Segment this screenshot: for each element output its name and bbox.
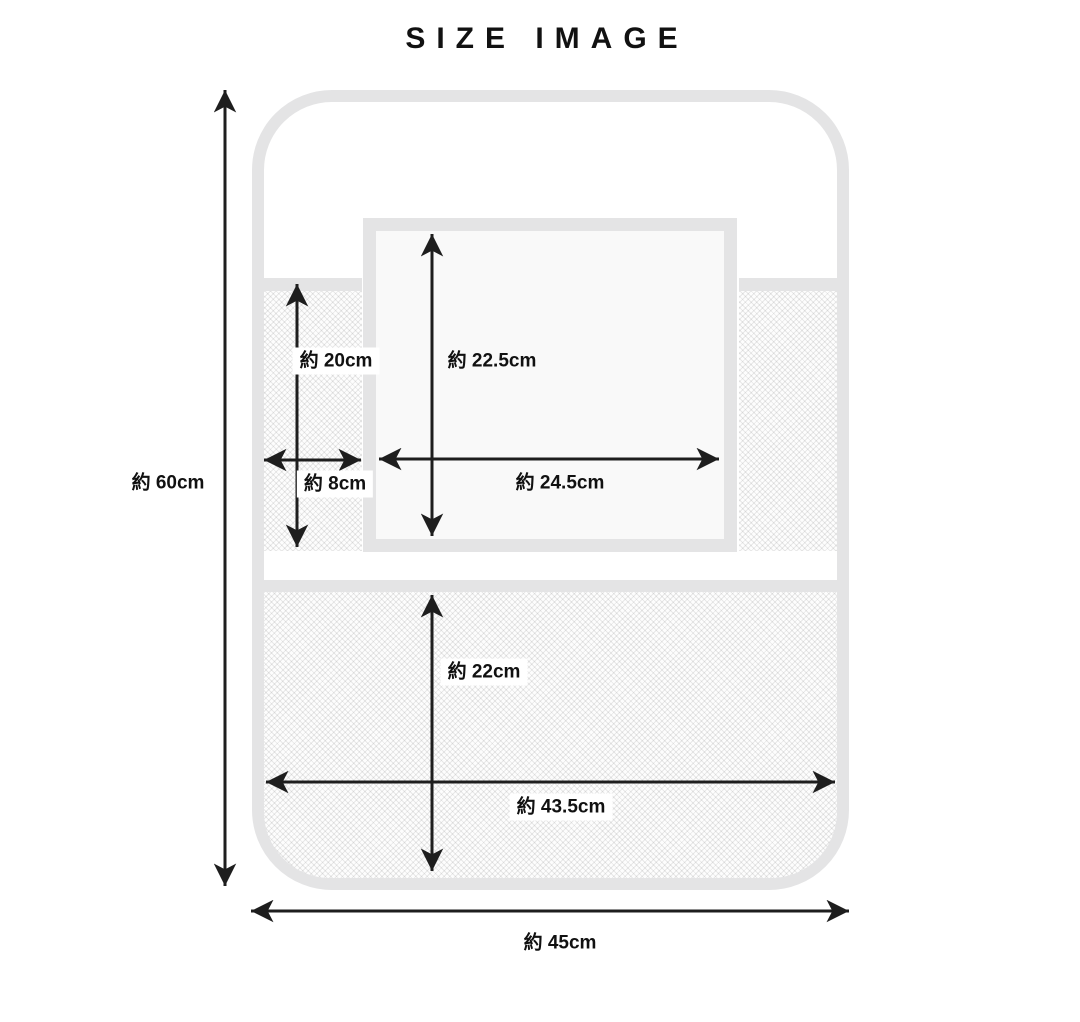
right-pocket-hem <box>739 278 837 291</box>
left-mesh-pocket <box>264 291 362 551</box>
diagram-title: SIZE IMAGE <box>0 22 1080 56</box>
tablet-pocket <box>363 218 737 552</box>
right-mesh-pocket <box>739 291 837 551</box>
bottom-pocket-hem <box>264 580 837 592</box>
bottom-mesh-pocket <box>264 592 837 878</box>
label-total-width: 約 45cm <box>524 934 597 953</box>
label-bottom-pocket-height: 約 22cm <box>441 659 528 686</box>
size-diagram: SIZE IMAGE 約 60cm 約 20cm 約 22.5cm <box>0 0 1080 1022</box>
label-center-pocket-width: 約 24.5cm <box>516 474 605 493</box>
label-bottom-pocket-width: 約 43.5cm <box>510 794 613 821</box>
label-side-pocket-width: 約 8cm <box>297 471 373 498</box>
label-side-pocket-height: 約 20cm <box>293 348 380 375</box>
label-total-height: 約 60cm <box>132 474 205 493</box>
left-pocket-hem <box>264 278 362 291</box>
label-center-pocket-height: 約 22.5cm <box>448 352 537 371</box>
